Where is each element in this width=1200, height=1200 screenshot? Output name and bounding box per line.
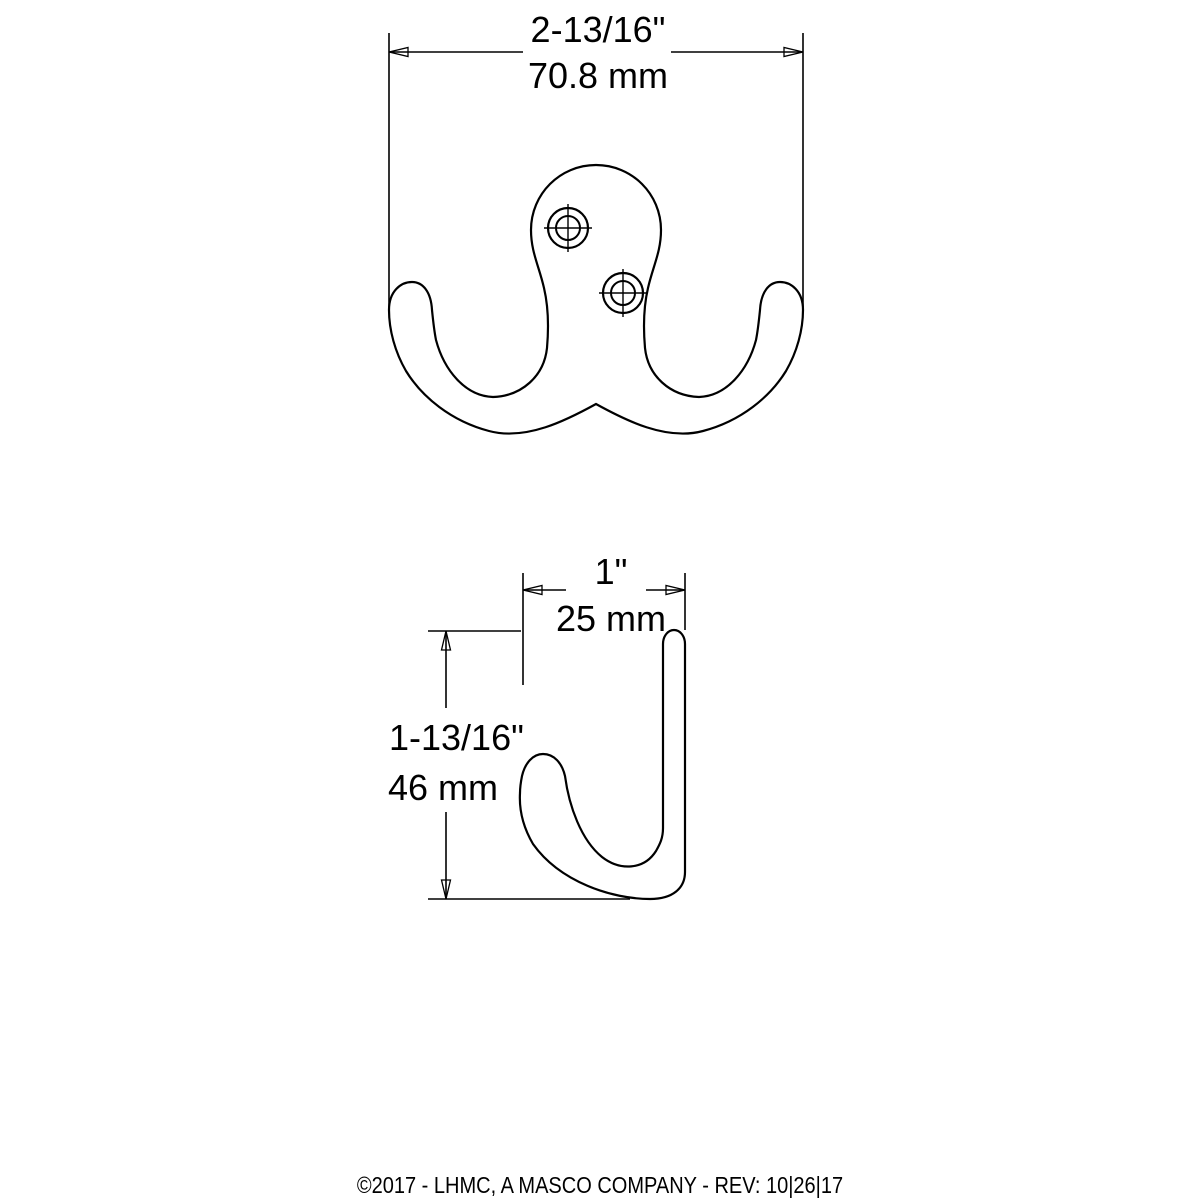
front-view	[389, 165, 803, 434]
technical-drawing-page: 2-13/16" 70.8 mm 1" 25 mm 1-13/16" 46 mm…	[0, 0, 1200, 1200]
front-view-outline	[389, 165, 803, 434]
height-dimension-inches-label: 1-13/16"	[389, 719, 524, 757]
crosshair-icon	[599, 269, 647, 317]
side-view	[520, 630, 685, 899]
height-dimension-mm-label: 46 mm	[388, 769, 498, 807]
footer-text: ©2017 - LHMC, A MASCO COMPANY - REV: 10|…	[78, 1172, 1122, 1198]
screw-hole-top	[544, 204, 592, 252]
crosshair-icon	[544, 204, 592, 252]
depth-dimension-inches-label: 1"	[595, 553, 628, 591]
depth-dimension-mm-label: 25 mm	[556, 600, 666, 638]
side-view-outline	[520, 630, 685, 899]
screw-hole-bottom	[599, 269, 647, 317]
width-dimension-mm-label: 70.8 mm	[528, 57, 668, 95]
width-dimension-inches-label: 2-13/16"	[531, 11, 666, 49]
height-dimension	[428, 631, 630, 899]
